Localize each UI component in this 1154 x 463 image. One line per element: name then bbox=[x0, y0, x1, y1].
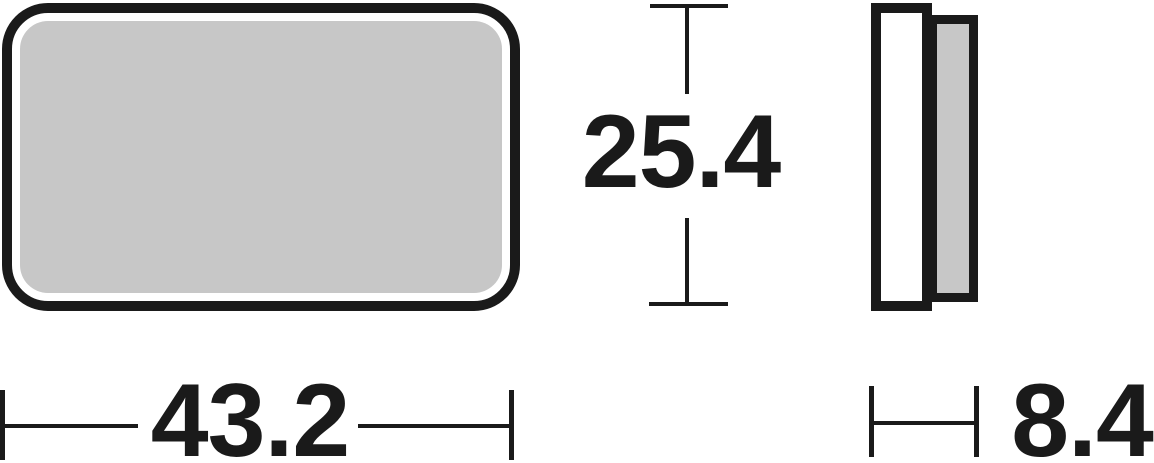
width-dim-label: 43.2 bbox=[151, 369, 349, 463]
width-dim-line-right bbox=[358, 424, 511, 428]
height-dim-label: 25.4 bbox=[582, 100, 780, 204]
thickness-dim-right-tick bbox=[974, 386, 979, 457]
width-dim-line-left bbox=[3, 424, 138, 428]
brake-pad-dimension-drawing: 25.4 43.2 8.4 bbox=[0, 0, 1154, 463]
pad-side-view-friction-material bbox=[928, 15, 978, 302]
height-dim-line-upper bbox=[685, 6, 689, 94]
height-dim-line-lower bbox=[685, 218, 689, 305]
thickness-dim-line bbox=[872, 421, 976, 425]
pad-friction-surface bbox=[20, 21, 502, 293]
width-dim-right-tick bbox=[509, 390, 514, 460]
pad-front-view bbox=[2, 3, 520, 311]
pad-side-view-backing-plate bbox=[871, 3, 932, 311]
height-dim-top-cap bbox=[650, 4, 728, 8]
height-dim-bottom-cap bbox=[649, 302, 728, 306]
thickness-dim-label: 8.4 bbox=[1011, 369, 1153, 463]
